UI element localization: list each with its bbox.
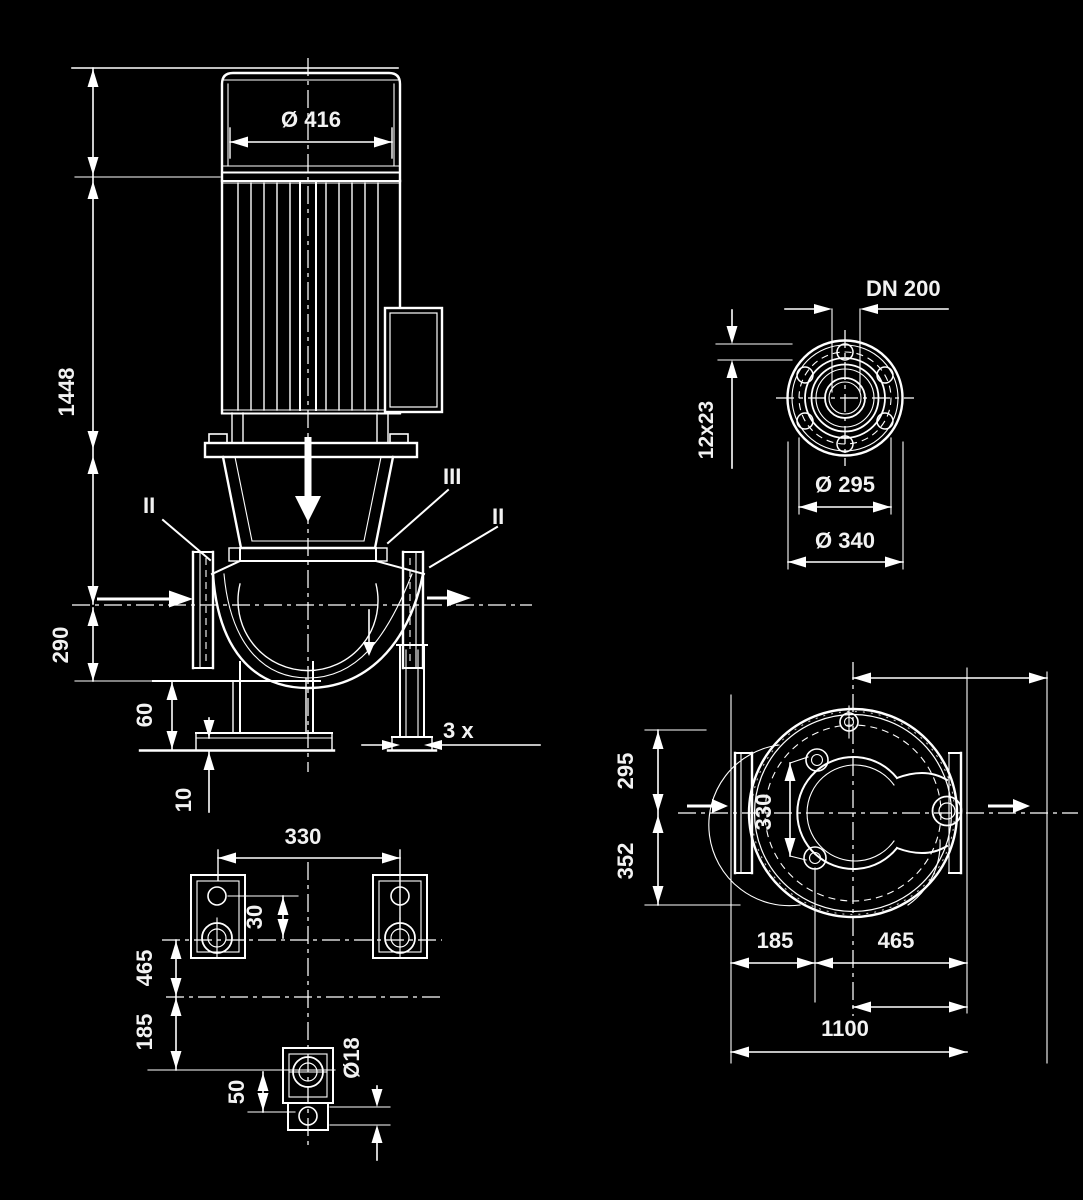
width-discharge-label: 352 xyxy=(613,843,638,880)
flange-od-label: Ø 340 xyxy=(815,528,875,553)
plan-dim-a-label: 185 xyxy=(757,928,794,953)
bolt-holes-label: 12x23 xyxy=(695,401,718,459)
pump-dimensional-drawing: Ø 416 1448 290 60 xyxy=(0,0,1083,1200)
foot-spacing-label: 330 xyxy=(285,824,322,849)
port-right-label: II xyxy=(492,504,504,529)
hole-offset-label: 30 xyxy=(242,905,267,929)
terminal-box xyxy=(385,308,442,412)
drain-count-label: 3 x xyxy=(443,718,474,743)
bolt-circle-label: Ø 295 xyxy=(815,472,875,497)
port-top-label: III xyxy=(443,464,461,489)
port-left-label: II xyxy=(143,493,155,518)
dim-foot-height-label: 60 xyxy=(132,703,157,727)
dim-height-base-label: 290 xyxy=(48,627,73,664)
dim-side-label: 50 xyxy=(224,1080,249,1104)
drawing-canvas: Ø 416 1448 290 60 xyxy=(0,0,1083,1200)
dim-fan-diameter-label: Ø 416 xyxy=(281,107,341,132)
dim-rear-label: 185 xyxy=(132,1014,157,1051)
plan-foot-spacing-label: 330 xyxy=(751,794,776,831)
dim-plate-thickness-label: 10 xyxy=(171,788,196,812)
dim-height-total-label: 1448 xyxy=(54,368,79,417)
nominal-label: DN 200 xyxy=(866,276,941,301)
plan-dim-b-label: 465 xyxy=(878,928,915,953)
total-length-label: 1100 xyxy=(821,1016,869,1041)
dim-front-label: 465 xyxy=(132,950,157,987)
hole-diameter-label: Ø18 xyxy=(339,1037,364,1079)
width-suction-label: 295 xyxy=(613,753,638,790)
